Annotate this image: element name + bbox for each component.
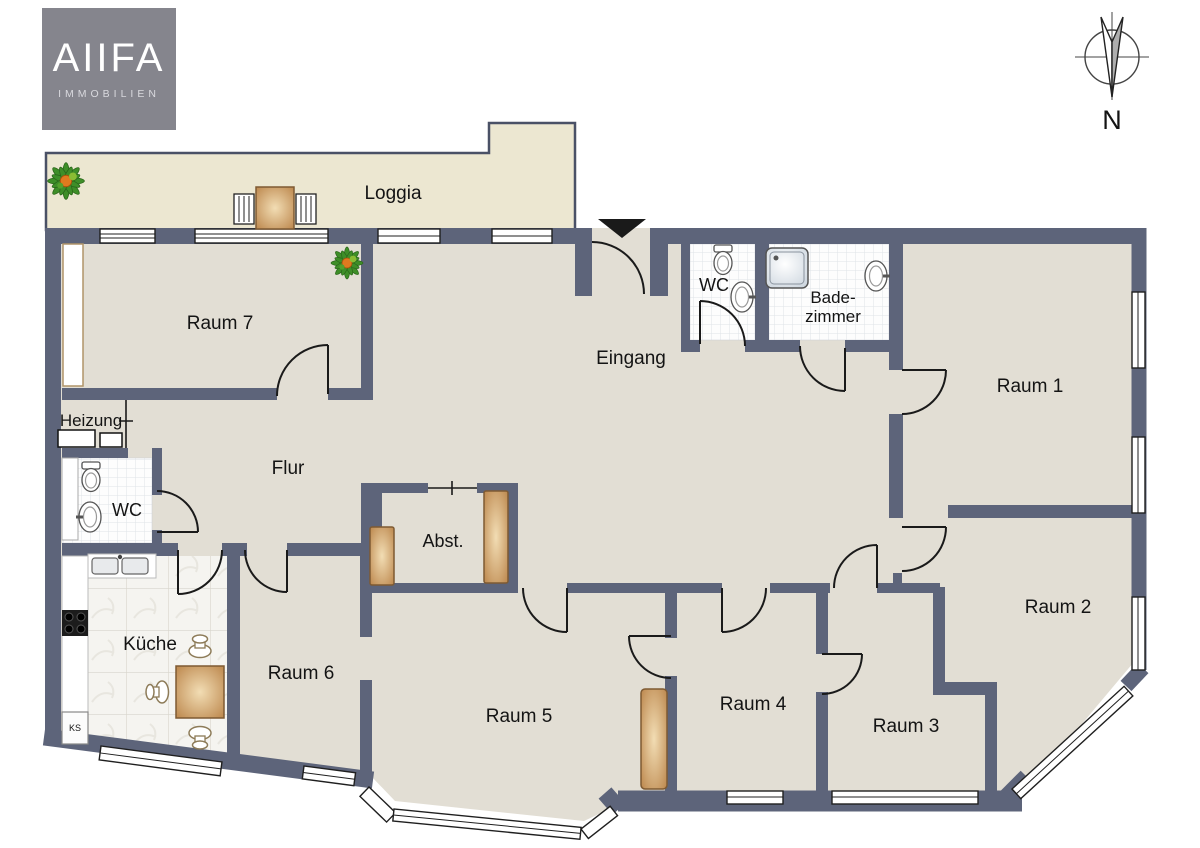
label-bad-1: Bade- [810,288,855,307]
label-raum7: Raum 7 [187,313,254,334]
label-raum4: Raum 4 [720,694,787,715]
floorplan-drawing: Loggia Raum 7 Eingang WC Bade- zimmer Ra… [0,0,1200,848]
label-ks: KS [69,723,81,733]
logo-subtitle: IMMOBILIEN [58,88,160,100]
label-heizung: Heizung [60,411,122,430]
agency-logo: AIIFA IMMOBILIEN [42,8,176,130]
wardrobe-raum7 [63,244,83,386]
label-wc-left: WC [112,500,142,520]
compass: N [1075,12,1149,135]
plant-loggia [48,163,85,200]
label-raum5: Raum 5 [486,706,553,727]
label-abst: Abst. [422,531,463,551]
label-eingang: Eingang [596,348,666,369]
label-raum2: Raum 2 [1025,597,1092,618]
label-raum1: Raum 1 [997,376,1064,397]
label-flur: Flur [272,458,305,479]
plant-raum7 [331,247,363,279]
label-loggia: Loggia [364,183,421,204]
label-wc-top: WC [699,275,729,295]
compass-n-label: N [1102,105,1122,135]
label-kueche: Küche [123,634,177,655]
label-bad-2: zimmer [805,307,861,326]
floorplan-page: Loggia Raum 7 Eingang WC Bade- zimmer Ra… [0,0,1200,848]
logo-title: AIIFA [53,38,166,78]
label-raum3: Raum 3 [873,716,940,737]
label-raum6: Raum 6 [268,663,335,684]
heizung-radiators [58,430,122,447]
